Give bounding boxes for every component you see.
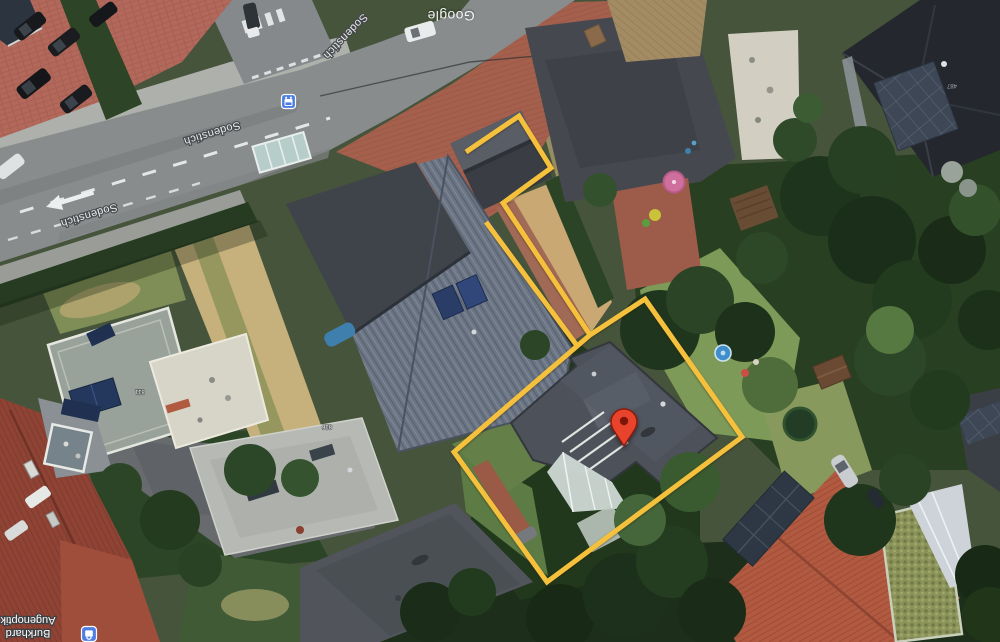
pool [715,345,731,361]
house-number-3: 487 [946,82,957,88]
poi-label-line2: Augenoptik [0,614,56,626]
google-watermark: Google [427,8,475,24]
satellite-map-view[interactable]: Sodenstich Sodenstich Sodenstich 811 816… [0,0,1000,642]
poi-label-line1: Burkhard [6,627,51,639]
poi-label: Burkhard Augenoptik [0,614,56,639]
house-number-2: 816 [321,423,332,429]
trampoline [784,408,816,440]
house-number-1: 811 [135,388,145,394]
bus-stop-icon[interactable] [282,95,296,109]
shopping-poi-icon [82,627,97,642]
